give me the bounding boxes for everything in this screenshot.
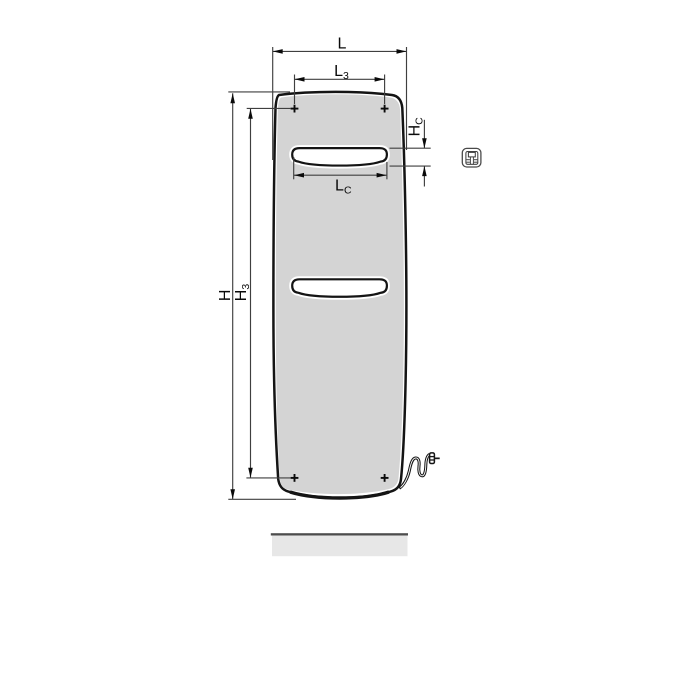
svg-text:L: L bbox=[338, 35, 347, 52]
svg-text:H: H bbox=[217, 290, 234, 302]
